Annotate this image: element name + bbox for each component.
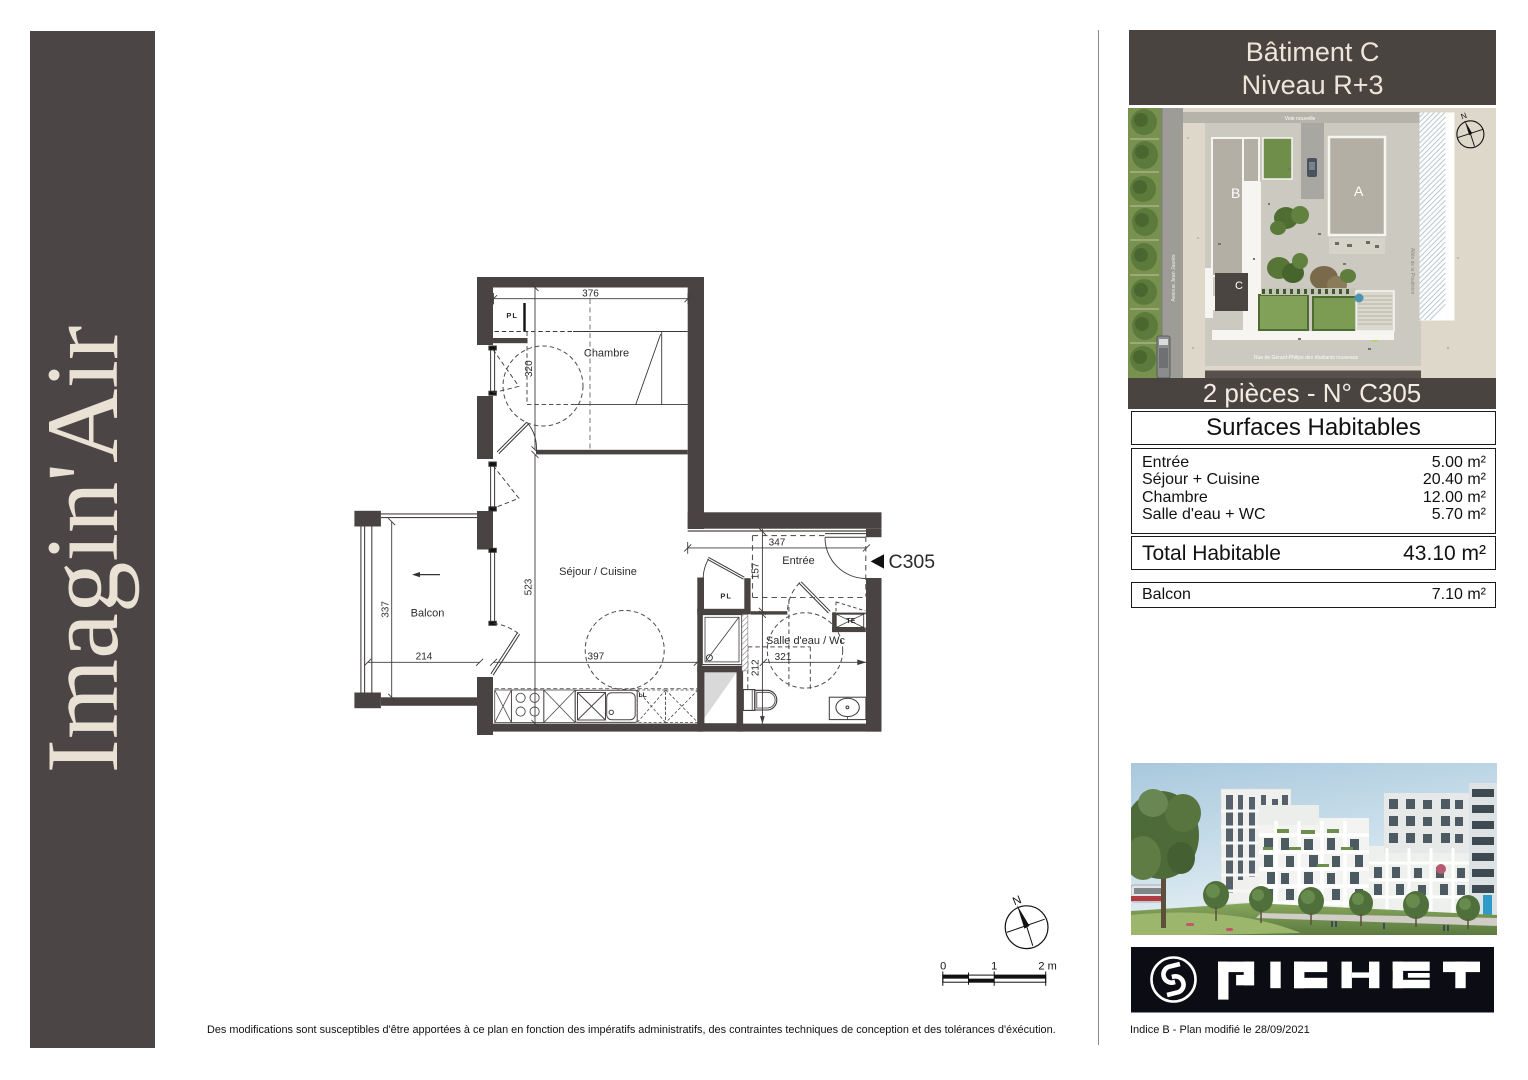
svg-text:Avenue Jean Jaurès: Avenue Jean Jaurès: [1171, 253, 1177, 301]
svg-text:320: 320: [524, 360, 535, 377]
svg-text:157: 157: [751, 562, 762, 579]
svg-text:Chambre: Chambre: [584, 347, 629, 359]
svg-text:321: 321: [775, 652, 792, 663]
svg-text:212: 212: [750, 659, 761, 676]
svg-text:397: 397: [588, 652, 605, 663]
svg-text:C: C: [1235, 280, 1243, 292]
svg-text:C305: C305: [889, 551, 936, 573]
svg-text:Allée de la Poudrière: Allée de la Poudrière: [1409, 248, 1415, 295]
svg-text:Rue de Gérard-Philipe des étu: Rue de Gérard-Philipe des étudiants nouv…: [1254, 355, 1358, 361]
svg-text:214: 214: [416, 652, 433, 663]
svg-text:1: 1: [991, 961, 997, 973]
svg-text:B: B: [1231, 185, 1240, 201]
svg-text:Séjour / Cuisine: Séjour / Cuisine: [559, 566, 637, 578]
svg-text:523: 523: [524, 578, 535, 595]
svg-text:A: A: [1354, 183, 1364, 199]
svg-text:347: 347: [769, 537, 786, 548]
svg-text:PL: PL: [506, 311, 518, 320]
svg-text:2 m: 2 m: [1038, 961, 1056, 973]
svg-text:337: 337: [380, 601, 391, 618]
svg-text:Entrée: Entrée: [782, 555, 814, 567]
svg-text:0: 0: [940, 961, 946, 973]
svg-text:TE: TE: [846, 618, 855, 625]
svg-text:376: 376: [582, 288, 599, 299]
svg-text:Salle d'eau / Wc: Salle d'eau / Wc: [766, 635, 846, 647]
svg-text:Balcon: Balcon: [411, 607, 445, 619]
svg-text:PL: PL: [720, 591, 732, 600]
svg-text:LL: LL: [639, 692, 647, 699]
svg-text:Voie nouvelle: Voie nouvelle: [1285, 116, 1316, 122]
